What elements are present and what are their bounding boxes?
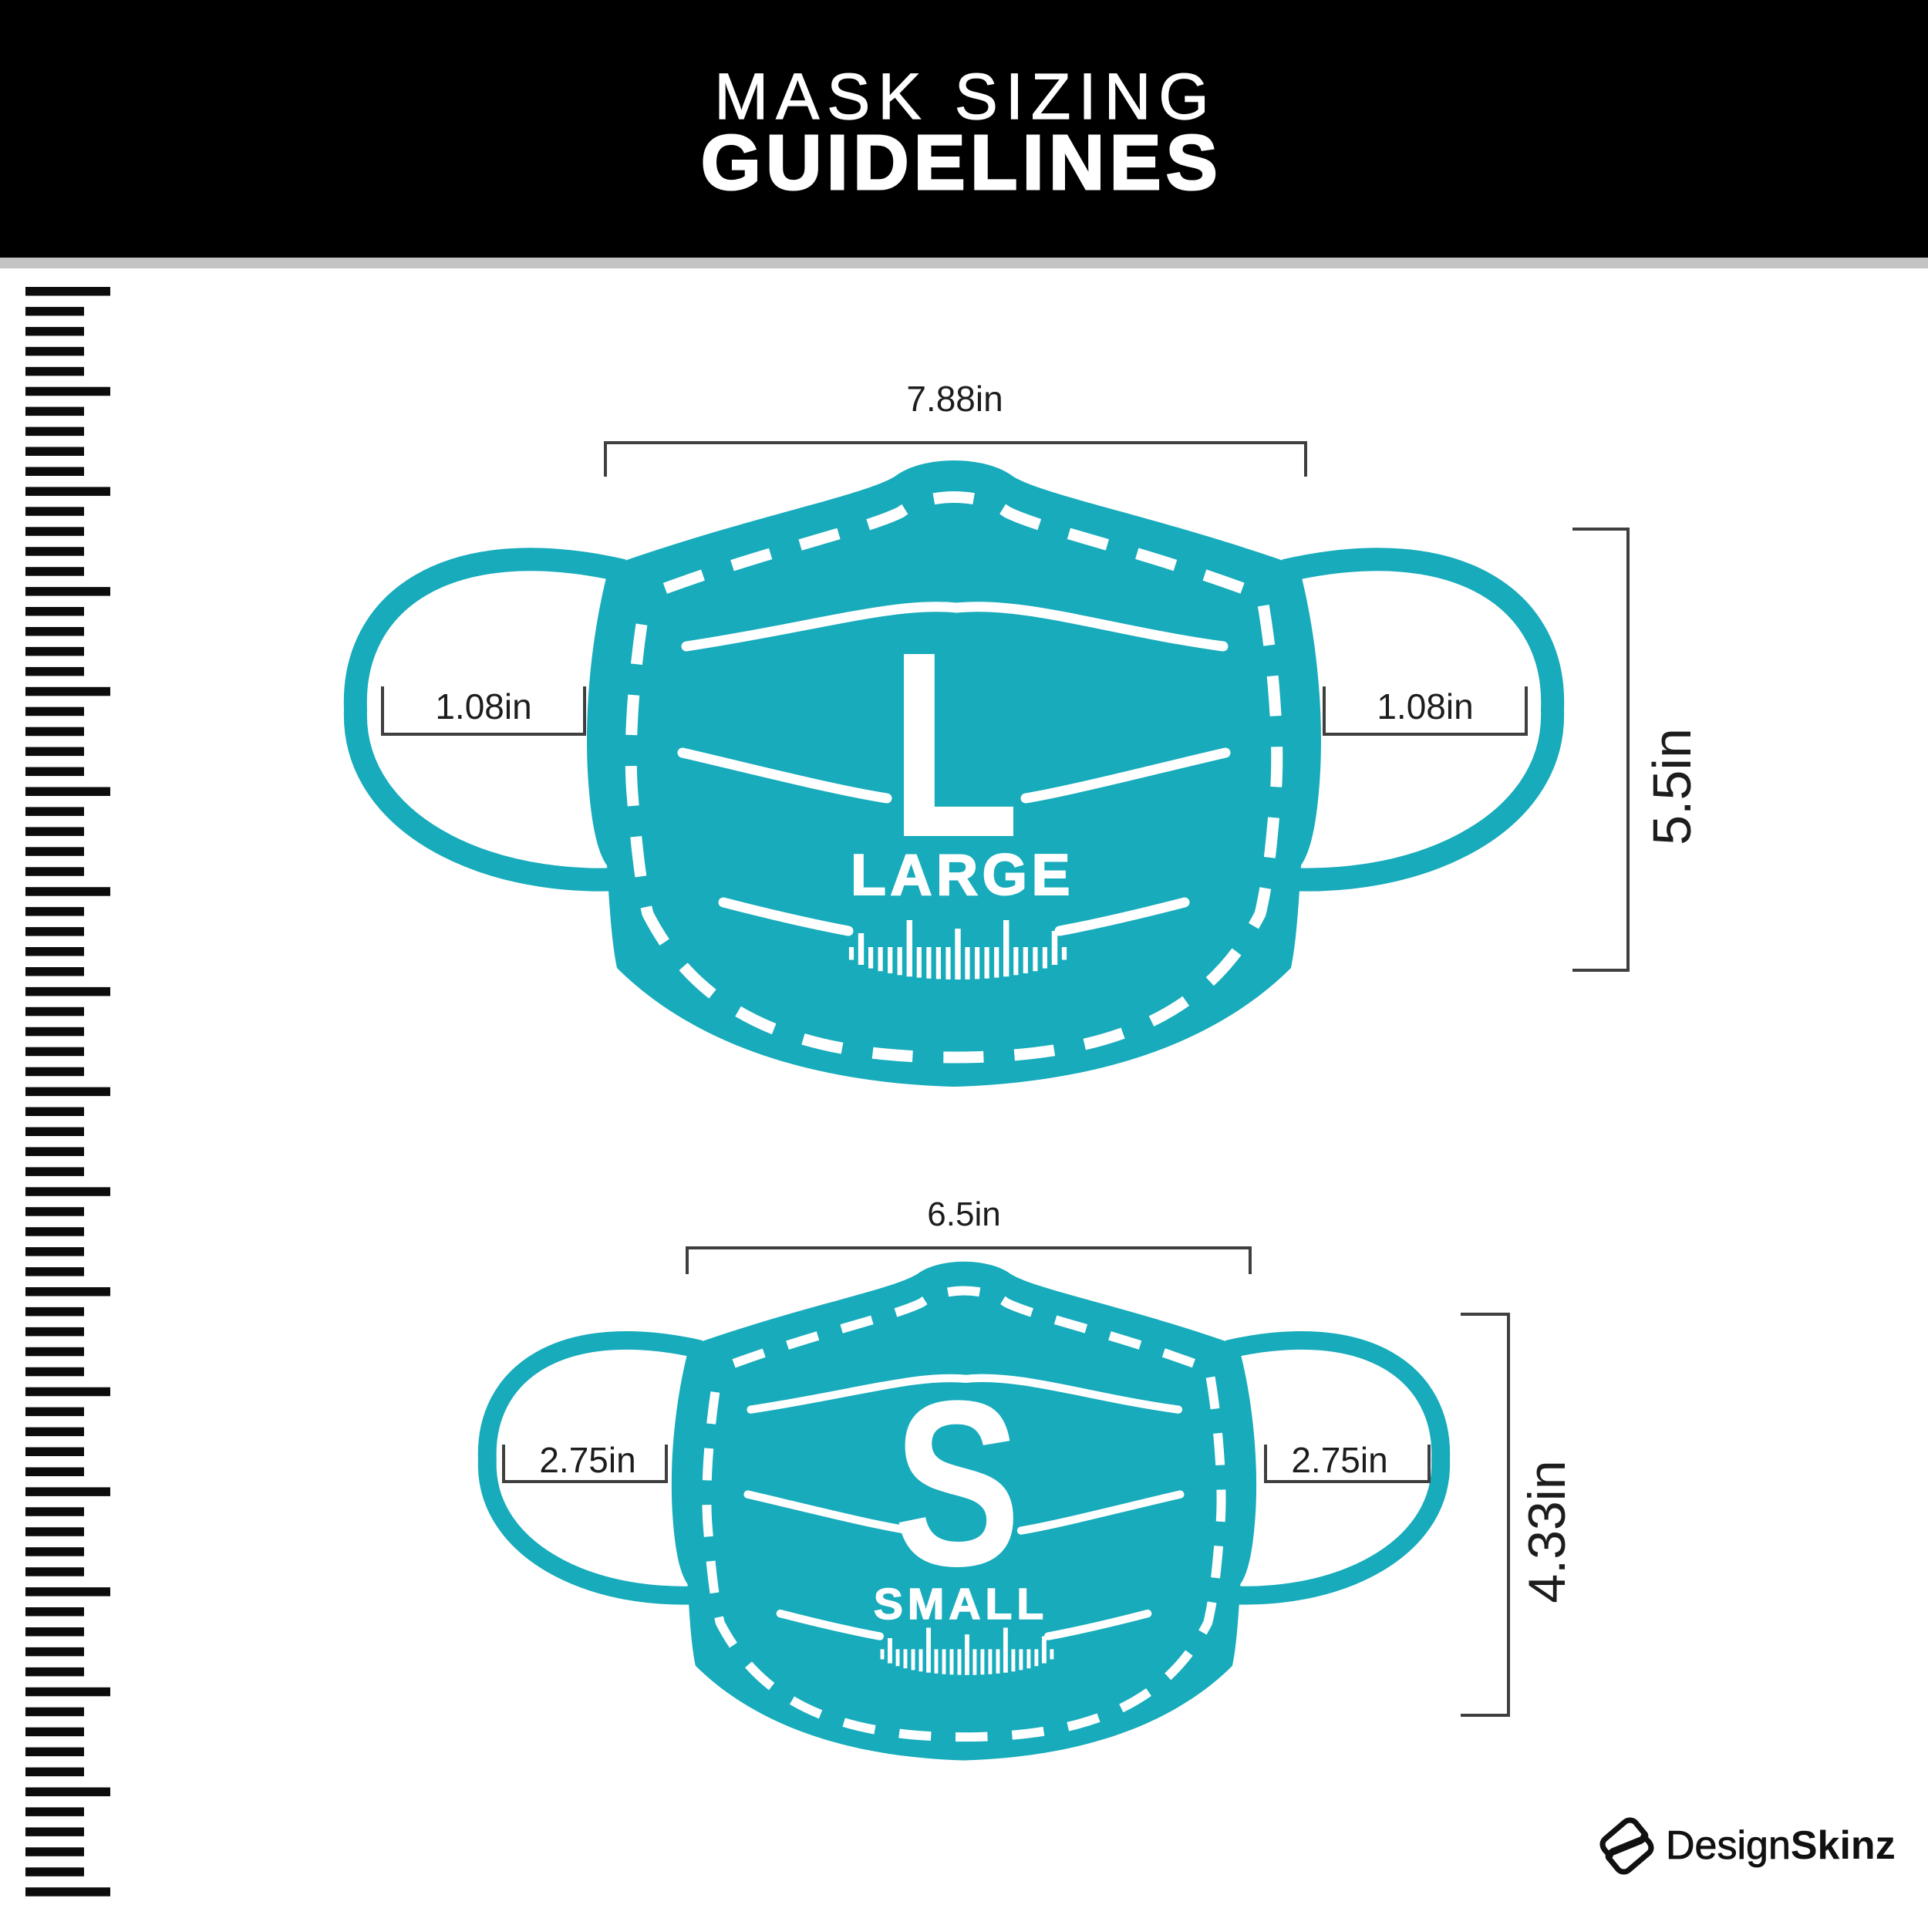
svg-text:7.88in: 7.88in <box>906 379 1003 419</box>
svg-text:SMALL: SMALL <box>874 1580 1048 1629</box>
svg-text:2.75in: 2.75in <box>1291 1440 1387 1480</box>
svg-text:6.5in: 6.5in <box>927 1195 1000 1233</box>
svg-text:LARGE: LARGE <box>851 842 1074 907</box>
svg-text:S: S <box>894 1351 1021 1615</box>
svg-text:5.5in: 5.5in <box>1642 728 1702 845</box>
svg-text:1.08in: 1.08in <box>435 686 531 727</box>
svg-text:1.08in: 1.08in <box>1377 686 1473 727</box>
svg-text:2.75in: 2.75in <box>539 1440 635 1480</box>
svg-text:4.33in: 4.33in <box>1518 1460 1576 1603</box>
svg-text:DesignSkinz: DesignSkinz <box>1666 1823 1896 1868</box>
svg-text:GUIDELINES: GUIDELINES <box>701 120 1222 206</box>
